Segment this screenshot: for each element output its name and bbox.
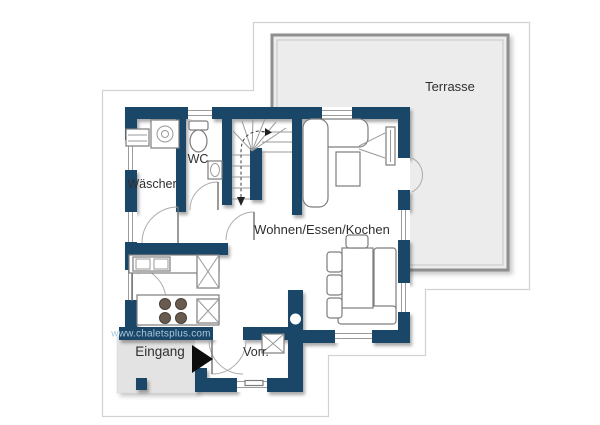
hand-basin-icon [208,161,222,179]
terrace-door-gap [398,158,410,190]
dining-table-icon [342,248,373,308]
coffee-table-icon [336,152,360,186]
stair-newel-wall [250,148,262,200]
wall-segment [212,107,322,119]
chair-icon [327,252,342,272]
label-waescher: Wäscher [127,177,176,191]
floorplan-drawing: Terrasse WC Wäscher Wohnen/Essen/Kochen … [0,0,600,425]
wall-segment [398,107,410,158]
kitchen-sink-icon [133,257,170,271]
chimney-flue [290,314,301,325]
label-wohnen: Wohnen/Essen/Kochen [254,222,390,237]
label-vorr: Vorr. [243,345,269,359]
label-terrasse: Terrasse [425,79,475,94]
wall-segment [398,190,410,210]
laundry-shelf-icon [126,129,149,146]
wall-segment [398,240,410,283]
porch-column [136,378,147,390]
front-door-gap [213,327,243,340]
wall-segment [125,243,228,255]
dishwasher-icon [197,299,219,323]
label-wc: WC [188,152,209,166]
chimney-column [288,290,303,392]
wall-segment [372,330,410,343]
wall-segment [222,119,232,205]
wall-segment [292,119,302,215]
chair-icon [327,298,342,318]
fridge-icon [197,255,219,288]
floorplan-page: Terrasse WC Wäscher Wohnen/Essen/Kochen … [0,0,600,425]
chair-icon [327,275,342,295]
watermark-text: www.chaletsplus.com [110,329,210,340]
wall-segment [195,368,207,392]
toilet-icon [189,121,208,152]
wall-segment [267,378,288,392]
wall-segment [303,330,335,343]
washing-machine-icon [151,120,179,148]
window-sill [245,381,263,386]
label-eingang: Eingang [135,344,185,359]
